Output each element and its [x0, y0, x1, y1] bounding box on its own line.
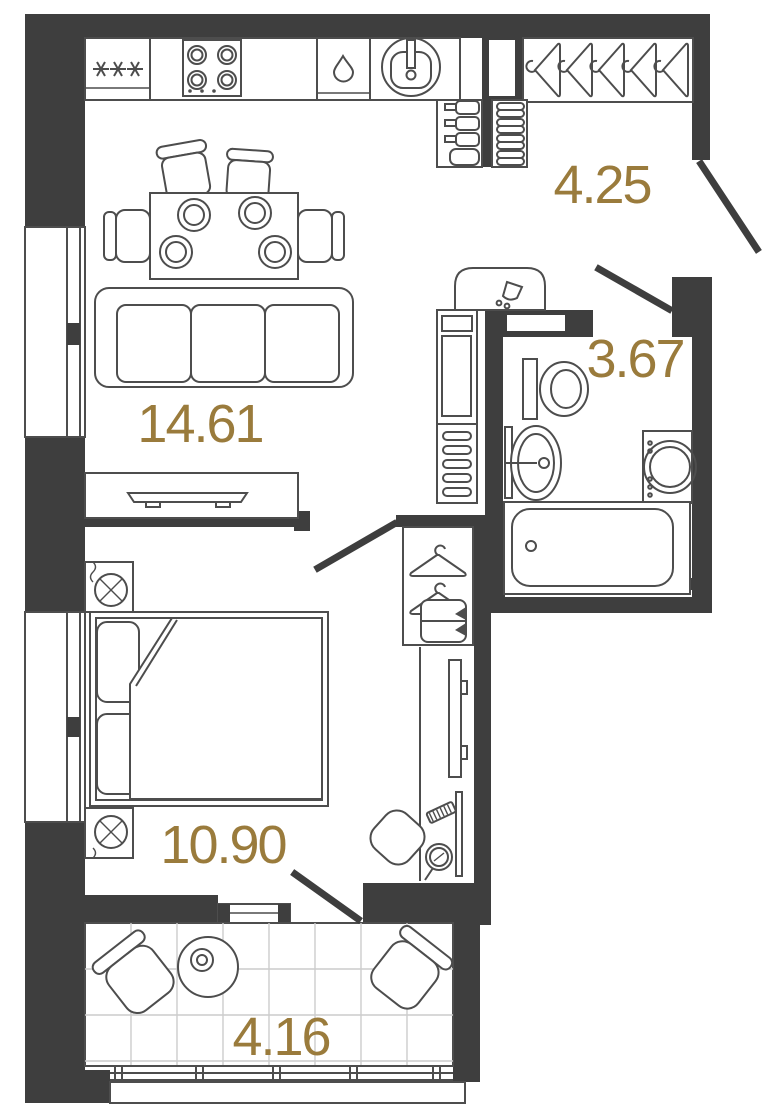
kitchen-sink-icon: [382, 38, 440, 96]
room-label-bathroom: 3.67: [586, 329, 683, 389]
room-label-bedroom: 10.90: [160, 815, 285, 875]
washbasin-icon: [505, 426, 561, 500]
living-room-window: [25, 227, 85, 437]
living-room-furniture: [85, 139, 353, 518]
bedroom-wardrobe: [403, 527, 473, 645]
dining-chair: [298, 210, 344, 262]
balcony-table: [178, 937, 238, 997]
bathroom-door-leaf: [599, 269, 669, 309]
wall-bath-top-niche: [507, 315, 565, 331]
blanket: [130, 618, 322, 799]
double-bed: [90, 612, 328, 806]
balcony-outer-band: [110, 1082, 465, 1103]
hob-icon: [183, 40, 241, 96]
floor-plan-page: 14.61 4.25 3.67 10.90 4.16: [0, 0, 780, 1110]
duct-shaft-inner: [489, 40, 515, 96]
wall-rack-divider: [482, 100, 492, 167]
wall-left-a: [25, 14, 85, 227]
hairbrush-icon: [426, 802, 456, 824]
hanger-wardrobe: [523, 38, 693, 102]
nightstand: [85, 808, 133, 858]
wall-right-bath: [692, 277, 712, 613]
bedroom-door-leaf: [318, 524, 394, 568]
wall-bedroom-bottom-left: [85, 895, 218, 923]
room-label-balcony: 4.16: [232, 1007, 329, 1067]
floor-plan: 14.61 4.25 3.67 10.90 4.16: [0, 0, 780, 1110]
water-heater-icon: [455, 268, 545, 310]
balcony-door-leaf: [295, 874, 358, 919]
dining-chair: [156, 139, 215, 201]
tv-stand: [85, 473, 298, 518]
wall-bath-left: [485, 310, 503, 600]
room-label-kitchen-living: 14.61: [137, 394, 262, 454]
balcony-window-sill: [218, 904, 290, 923]
hand-mirror-icon: [425, 844, 452, 880]
kitchen-counter: [85, 38, 460, 100]
towel-radiator-icon: [437, 424, 477, 503]
dressing-table: [364, 647, 467, 881]
wall-left-c: [25, 822, 85, 1103]
cabinet-icon: [437, 310, 477, 424]
sofa: [95, 288, 353, 387]
folded-clothes-icon: [421, 600, 466, 642]
bedroom-window: [25, 612, 85, 822]
wall-right-upper: [692, 14, 710, 160]
wall-balcony-right: [453, 925, 480, 1082]
shelf: [456, 792, 462, 876]
hallway-furniture: [437, 38, 693, 167]
dining-table: [150, 193, 298, 279]
bathtub-icon: [504, 502, 690, 594]
nightstand: [85, 562, 133, 612]
dining-chair: [104, 210, 150, 262]
bottle-shelf: [437, 100, 482, 167]
wall-top: [25, 14, 710, 38]
washing-machine-icon: [643, 431, 696, 503]
balcony-railing: [110, 1066, 465, 1103]
wall-left-b: [25, 437, 85, 612]
room-label-hallway: 4.25: [553, 155, 650, 215]
wall-tv-icon: [449, 660, 467, 777]
toilet-icon: [523, 359, 588, 419]
shoe-rack: [492, 100, 527, 167]
entrance-door-leaf: [701, 164, 757, 249]
wall-balcony-left-block: [25, 1070, 110, 1103]
wall-bedroom-bottom-right: [363, 883, 491, 925]
